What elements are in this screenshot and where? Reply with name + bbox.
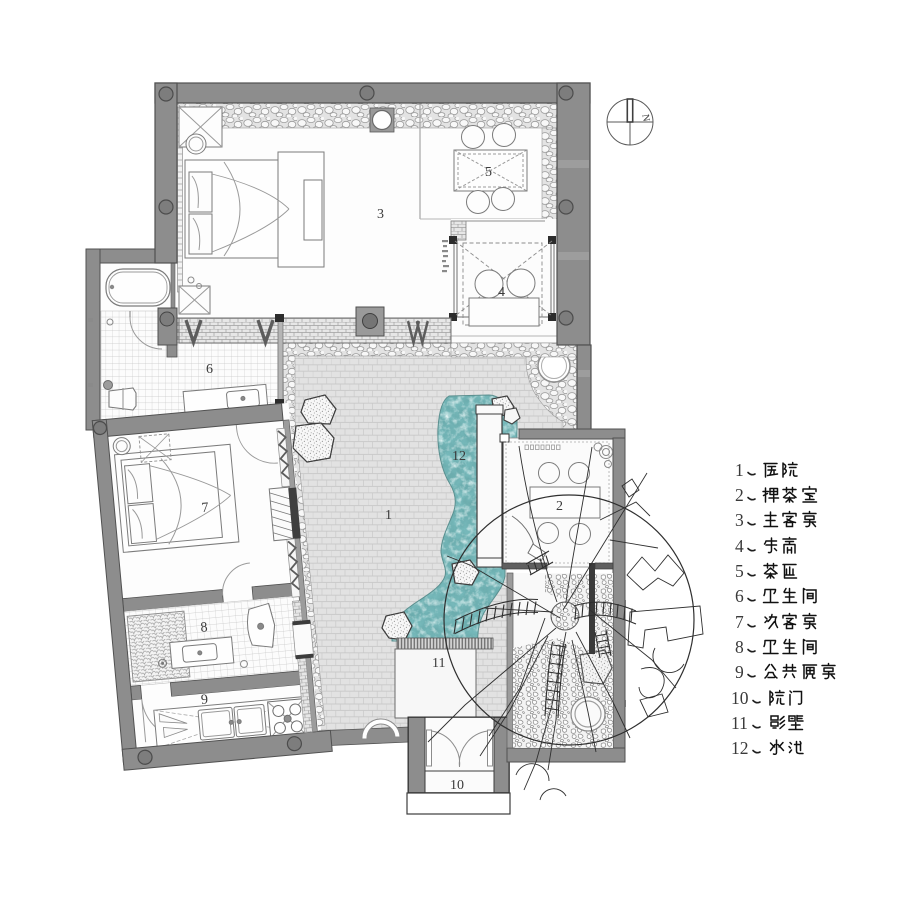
svg-text:12: 12: [731, 738, 749, 758]
svg-text:1: 1: [385, 508, 392, 523]
svg-text:10: 10: [450, 778, 464, 793]
svg-text:9: 9: [735, 662, 744, 682]
svg-text:1: 1: [735, 460, 744, 480]
svg-text:6: 6: [735, 586, 744, 606]
svg-text:2: 2: [735, 485, 744, 505]
svg-text:7: 7: [201, 501, 209, 517]
svg-text:4: 4: [498, 285, 505, 300]
svg-text:5: 5: [485, 165, 492, 180]
svg-text:10: 10: [731, 688, 749, 708]
svg-text:6: 6: [206, 362, 213, 377]
svg-text:12: 12: [452, 449, 466, 464]
svg-text:3: 3: [735, 510, 744, 530]
svg-text:11: 11: [731, 713, 748, 733]
svg-text:11: 11: [432, 656, 445, 671]
svg-text:4: 4: [735, 536, 744, 556]
svg-text:8: 8: [200, 620, 208, 636]
svg-text:3: 3: [377, 207, 384, 222]
svg-text:2: 2: [556, 499, 563, 514]
svg-text:8: 8: [735, 637, 744, 657]
svg-text:5: 5: [735, 561, 744, 581]
svg-text:9: 9: [200, 692, 208, 708]
svg-text:7: 7: [735, 612, 744, 632]
